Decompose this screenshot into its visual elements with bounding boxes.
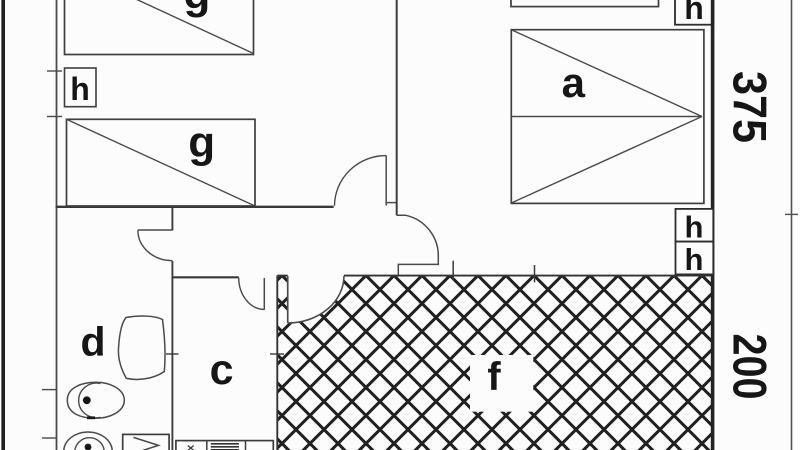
svg-text:200: 200 <box>724 334 777 400</box>
svg-text:g: g <box>188 118 215 167</box>
svg-text:375: 375 <box>724 71 777 143</box>
svg-text:h: h <box>685 242 704 277</box>
svg-text:f: f <box>487 355 501 399</box>
svg-text:c: c <box>210 346 234 394</box>
svg-text:h: h <box>70 71 90 107</box>
svg-text:a: a <box>562 59 586 106</box>
svg-text:g: g <box>184 0 211 19</box>
svg-text:h: h <box>684 0 704 26</box>
svg-text:h: h <box>685 209 704 244</box>
svg-text:d: d <box>80 319 105 365</box>
